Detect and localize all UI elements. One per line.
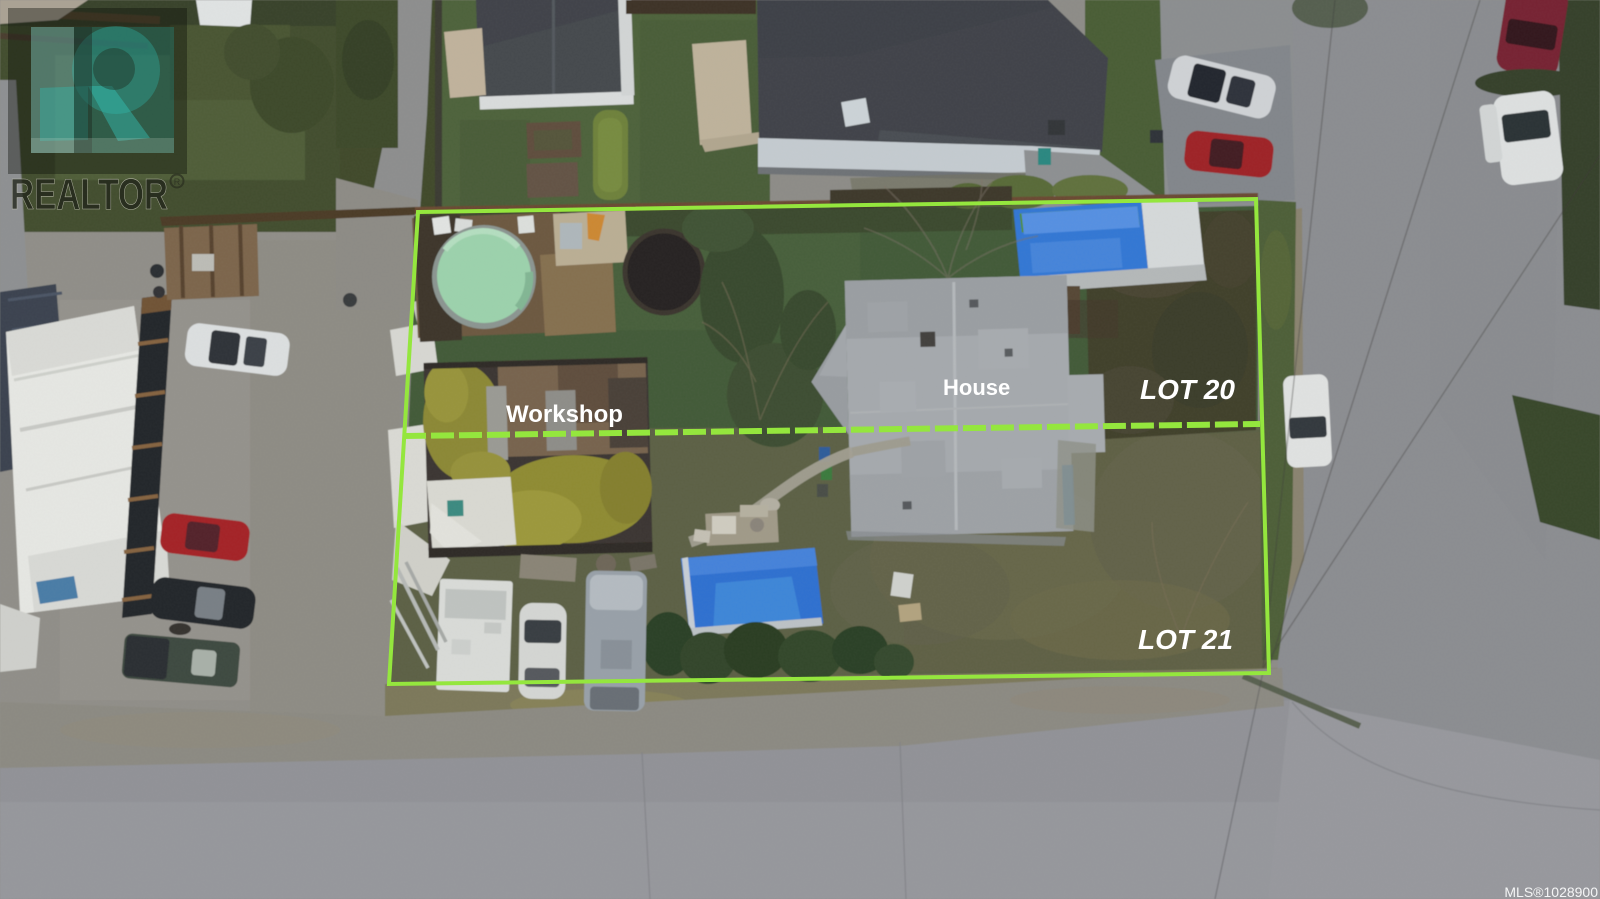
svg-text:House: House [943,375,1010,400]
svg-text:LOT 21: LOT 21 [1138,624,1233,655]
svg-text:LOT 20: LOT 20 [1140,374,1235,405]
svg-text:Workshop: Workshop [506,401,623,428]
svg-text:R: R [174,177,181,187]
svg-text:MLS®1028900: MLS®1028900 [1504,884,1598,899]
svg-text:REALTOR: REALTOR [10,170,168,219]
